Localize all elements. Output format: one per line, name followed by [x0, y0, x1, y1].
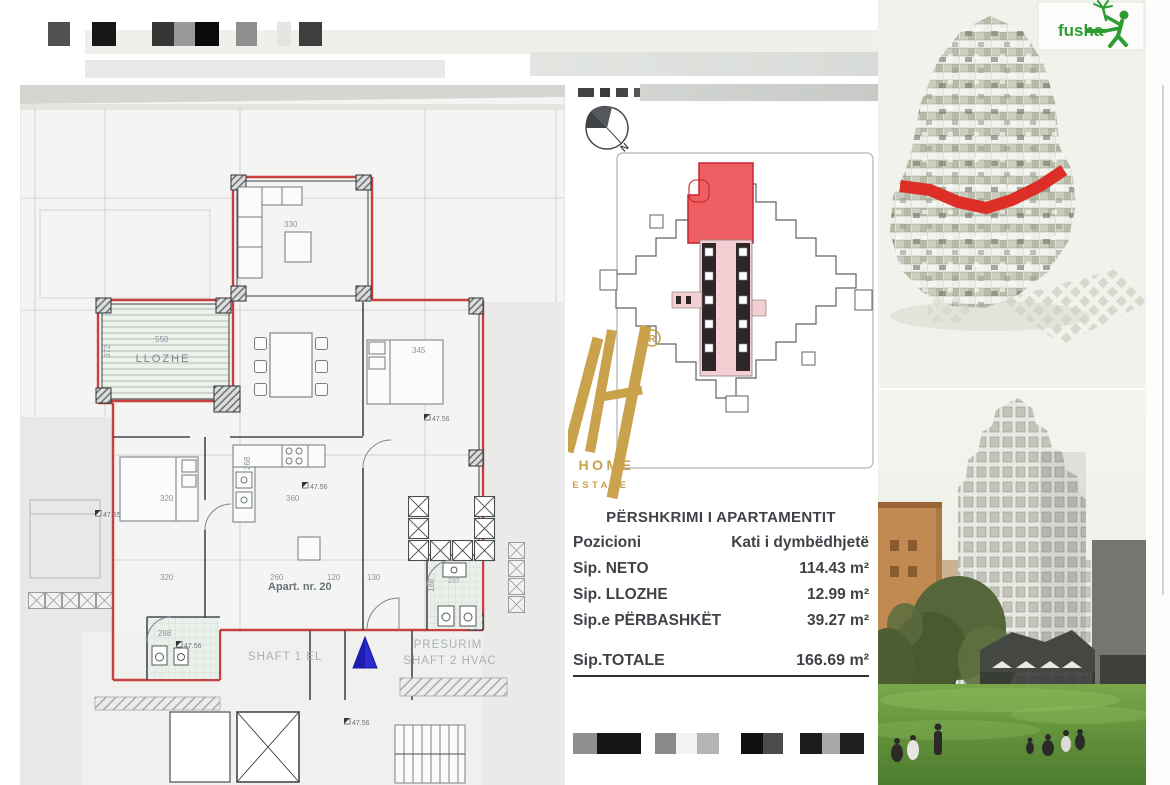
description-row: Sip. LLOZHE12.99 m²	[573, 586, 869, 604]
compass-icon: N	[586, 106, 632, 155]
dining-table	[255, 333, 328, 397]
description-row-label: Pozicioni	[573, 534, 641, 552]
total-value: 166.69 m²	[796, 652, 869, 670]
logo-tagline: REAL ESTATE	[568, 480, 629, 491]
redaction-block	[697, 733, 719, 754]
tower-axonometric-image: fusha	[878, 0, 1170, 388]
shaft2-label: SHAFT 2 HVAC	[403, 655, 496, 667]
svg-text:130: 130	[367, 573, 381, 582]
description-title: PËRSHKRIMI I APARTAMENTIT	[573, 509, 869, 526]
svg-text:47.56: 47.56	[432, 416, 450, 423]
logo-name: VERO HOME	[568, 457, 635, 473]
page-edge-line	[1162, 85, 1164, 595]
shaft-wall-hatch	[400, 678, 507, 696]
svg-text:47.56: 47.56	[310, 484, 328, 491]
brochure-page: 47.56 47.56 47.55 47.56 47.56 550 372 33…	[0, 0, 1170, 785]
svg-text:188: 188	[427, 578, 436, 592]
description-total-row: Sip.TOTALE 166.69 m²	[573, 652, 869, 677]
svg-text:47.56: 47.56	[352, 720, 370, 727]
description-row-value: 12.99 m²	[807, 586, 869, 604]
apartment-description: PËRSHKRIMI I APARTAMENTIT PozicioniKati …	[573, 509, 869, 677]
svg-text:47.56: 47.56	[184, 643, 202, 650]
redaction-block	[676, 733, 697, 754]
description-row-label: Sip.e PËRBASHKËT	[573, 612, 721, 630]
svg-text:372: 372	[103, 344, 112, 358]
description-row-label: Sip. NETO	[573, 560, 649, 578]
svg-text:330: 330	[284, 220, 298, 229]
svg-text:47.55: 47.55	[103, 512, 121, 519]
apartment-number-label: Apart. nr. 20	[268, 581, 332, 593]
svg-text:237: 237	[448, 578, 460, 585]
svg-text:320: 320	[160, 573, 174, 582]
svg-text:320: 320	[160, 494, 174, 503]
redaction-block	[597, 733, 641, 754]
redaction-block	[741, 733, 763, 754]
svg-text:268: 268	[243, 456, 252, 470]
description-row-value: 114.43 m²	[799, 560, 869, 578]
middle-panel: N	[568, 80, 880, 505]
svg-text:360: 360	[286, 494, 300, 503]
bed-left	[120, 457, 198, 521]
redaction-block	[800, 733, 822, 754]
description-row-value: Kati i dymbëdhjetë	[731, 534, 869, 552]
description-row-value: 39.27 m²	[807, 612, 869, 630]
llozhe-room	[102, 304, 229, 399]
description-row: PozicioniKati i dymbëdhjetë	[573, 534, 869, 552]
presurim-label: PRESURIM	[414, 639, 483, 651]
redaction-block	[763, 733, 783, 754]
shaft1-label: SHAFT 1 EL	[248, 651, 322, 663]
description-rows: PozicioniKati i dymbëdhjetëSip. NETO114.…	[573, 534, 869, 630]
description-row-label: Sip. LLOZHE	[573, 586, 668, 604]
park-render-image	[878, 390, 1170, 785]
svg-text:R: R	[648, 334, 656, 345]
page-edge	[1146, 0, 1170, 785]
svg-text:288: 288	[158, 629, 172, 638]
redaction-block	[822, 733, 840, 754]
redaction-block	[655, 733, 676, 754]
shaft-wall-hatch	[95, 697, 220, 710]
stairs	[395, 725, 465, 783]
bed-right	[367, 340, 443, 404]
redaction-block	[573, 733, 597, 754]
description-row: Sip.e PËRBASHKËT39.27 m²	[573, 612, 869, 630]
svg-text:550: 550	[155, 335, 169, 344]
coffee-table	[285, 232, 311, 262]
llozhe-label: LLOZHE	[136, 353, 191, 365]
svg-text:345: 345	[412, 346, 426, 355]
redaction-block	[840, 733, 864, 754]
floor-plan: 47.56 47.56 47.55 47.56 47.56 550 372 33…	[20, 85, 565, 785]
fusha-logo: fusha	[1038, 1, 1144, 50]
description-row: Sip. NETO114.43 m²	[573, 560, 869, 578]
total-label: Sip.TOTALE	[573, 652, 665, 670]
